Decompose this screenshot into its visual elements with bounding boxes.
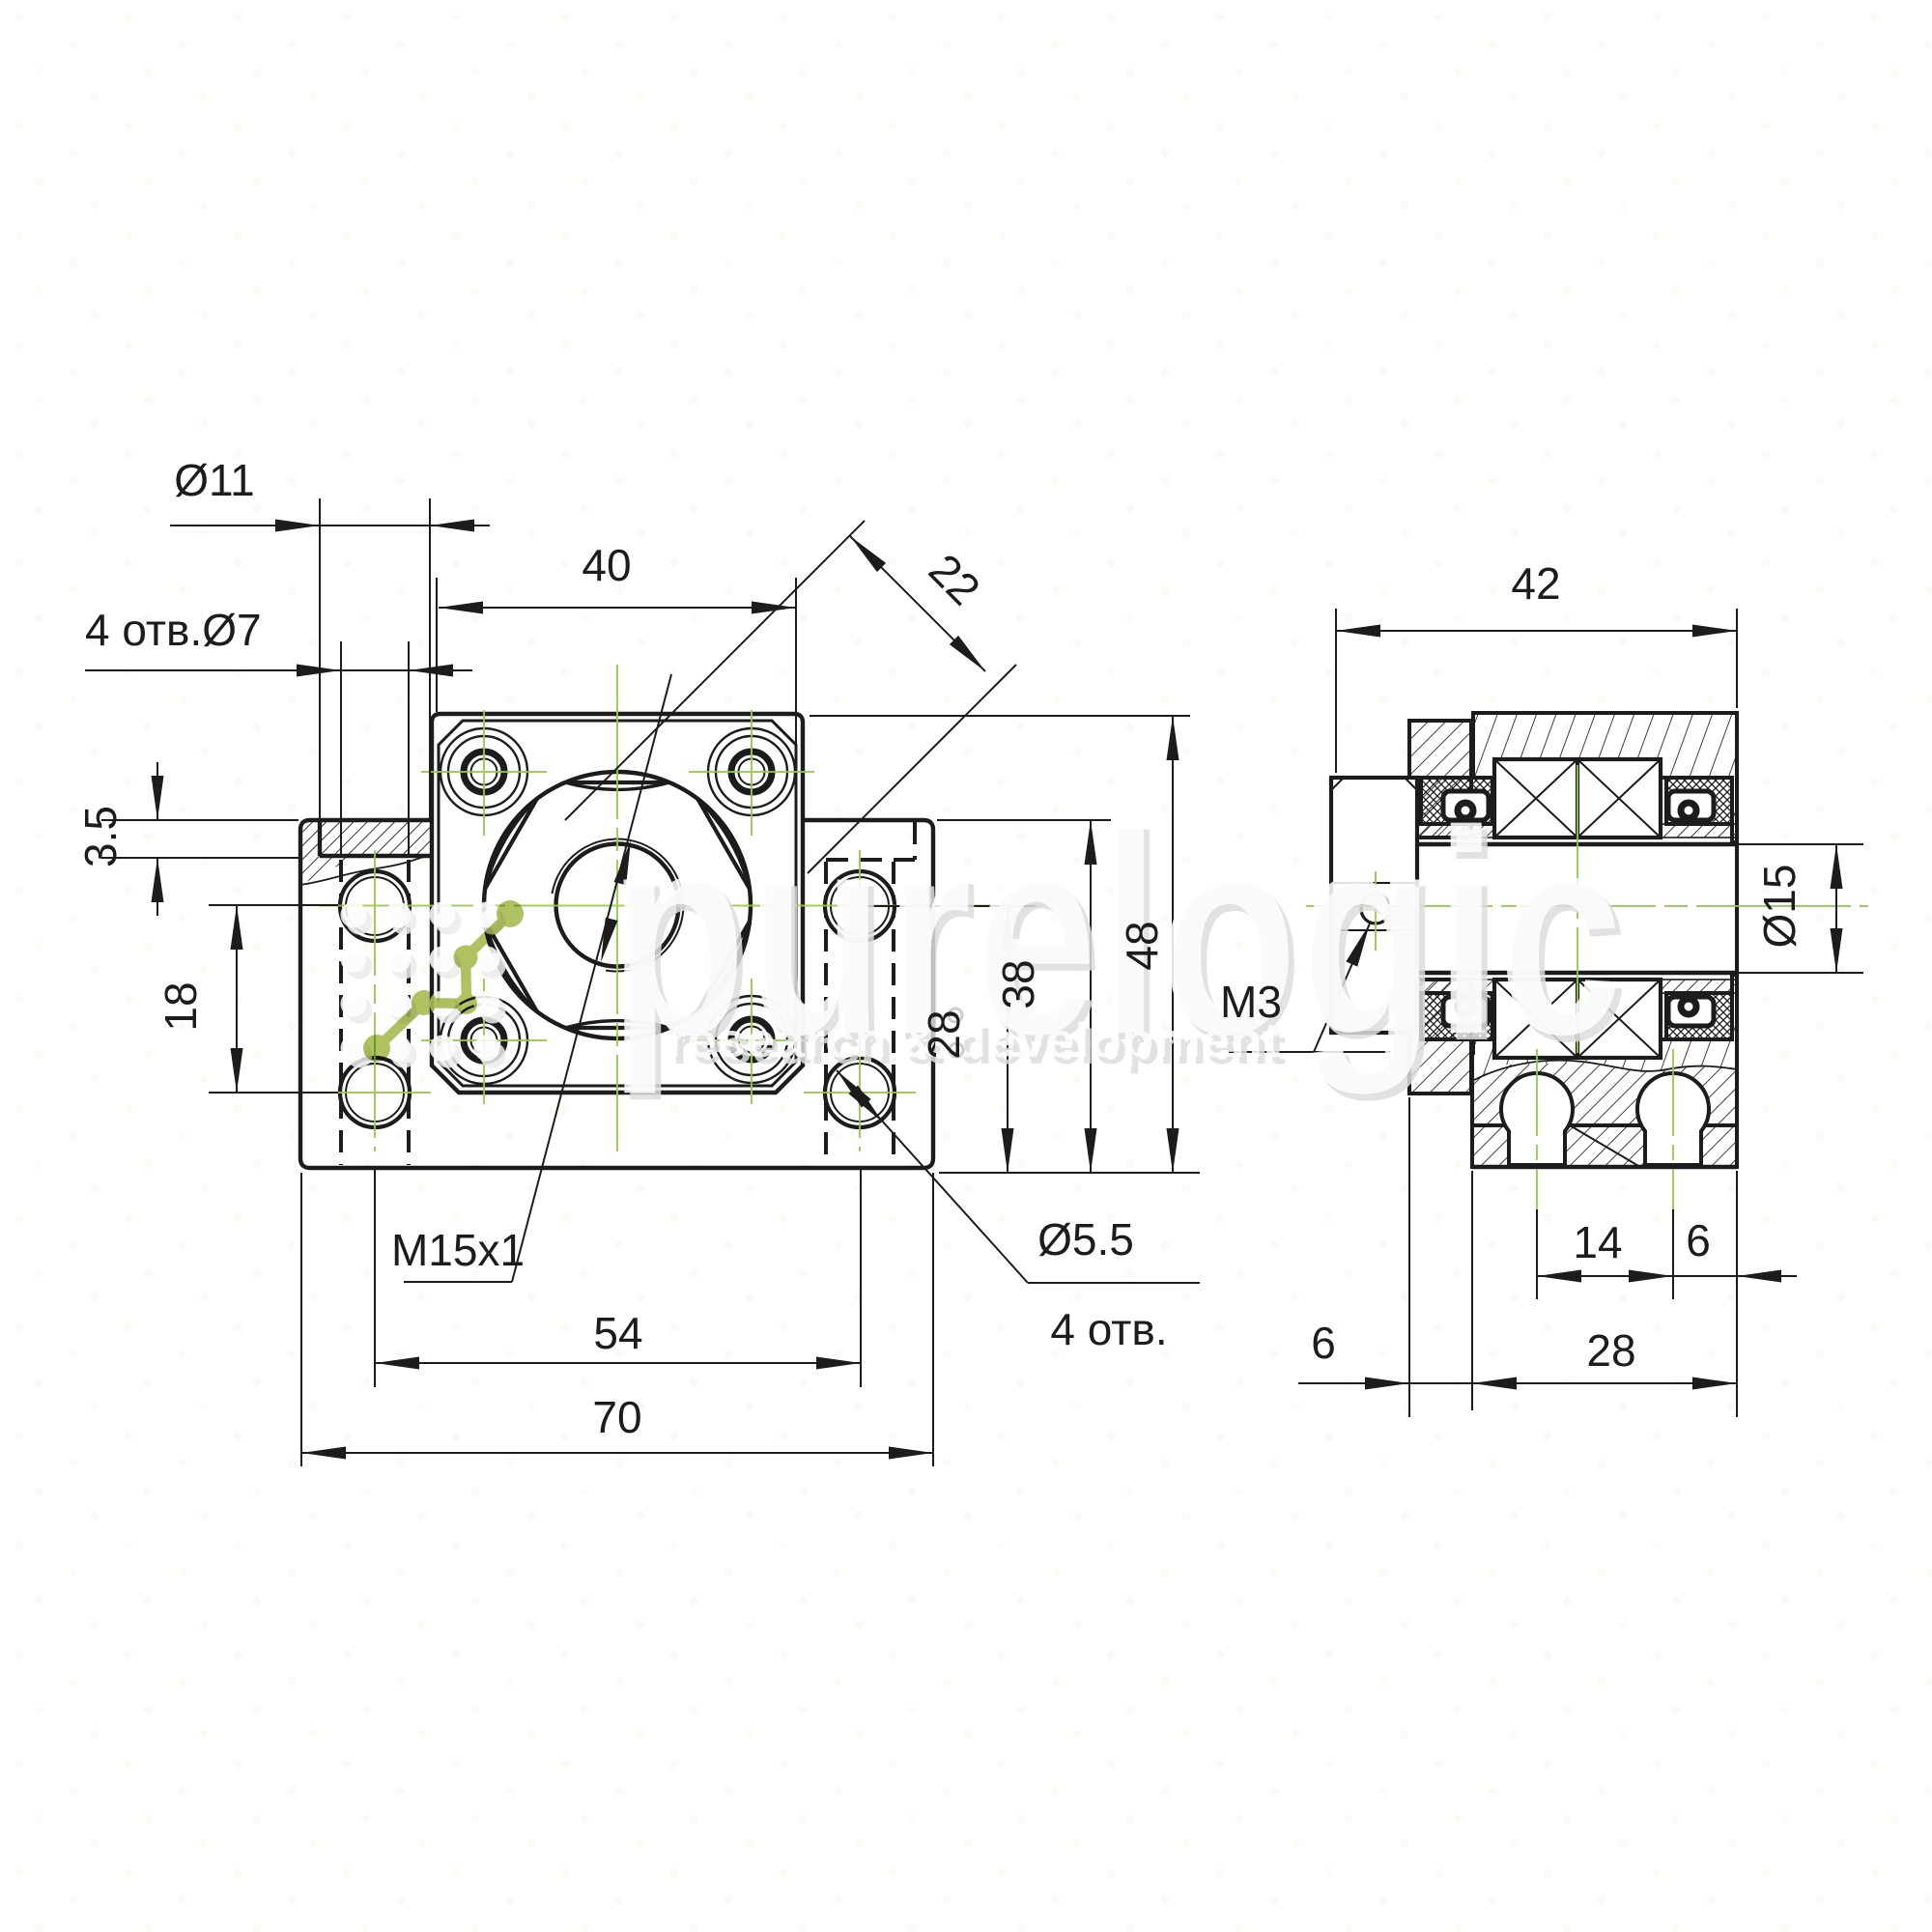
svg-text:4 отв.: 4 отв. bbox=[1050, 1304, 1167, 1354]
svg-text:Ø11: Ø11 bbox=[174, 455, 255, 505]
svg-text:Ø5.5: Ø5.5 bbox=[1037, 1214, 1134, 1264]
svg-text:4 отв.Ø7: 4 отв.Ø7 bbox=[85, 605, 262, 655]
svg-text:28: 28 bbox=[919, 1009, 969, 1059]
svg-text:14: 14 bbox=[1573, 1217, 1622, 1267]
svg-text:70: 70 bbox=[592, 1392, 641, 1442]
svg-text:28: 28 bbox=[1586, 1325, 1635, 1376]
svg-text:research & development: research & development bbox=[667, 1013, 1280, 1067]
svg-text:6: 6 bbox=[1311, 1318, 1336, 1368]
svg-text:3.5: 3.5 bbox=[75, 806, 126, 867]
svg-text:M3: M3 bbox=[1220, 977, 1282, 1027]
svg-text:54: 54 bbox=[593, 1308, 642, 1358]
svg-text:Ø15: Ø15 bbox=[1754, 865, 1804, 949]
svg-text:48: 48 bbox=[1117, 921, 1167, 970]
svg-text:6: 6 bbox=[1686, 1215, 1711, 1265]
svg-text:38: 38 bbox=[993, 959, 1043, 1009]
svg-text:18: 18 bbox=[156, 981, 206, 1031]
svg-text:42: 42 bbox=[1511, 558, 1560, 609]
svg-text:40: 40 bbox=[582, 540, 631, 590]
svg-text:M15x1: M15x1 bbox=[391, 1225, 525, 1275]
